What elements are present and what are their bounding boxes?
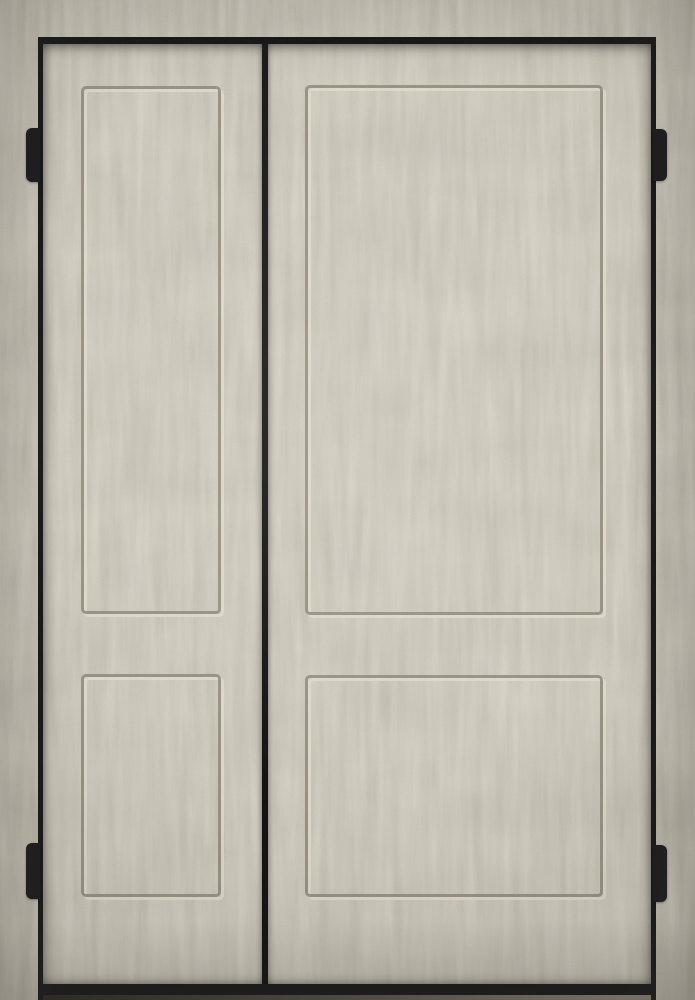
hinge-right-top — [653, 129, 667, 181]
hinge-left-top — [26, 128, 40, 182]
hinge-left-bottom — [26, 843, 40, 899]
door-frame — [38, 37, 656, 1000]
double-door-photo — [0, 0, 695, 1000]
floor-sliver — [43, 995, 651, 1000]
hinge-right-bottom — [653, 845, 667, 902]
